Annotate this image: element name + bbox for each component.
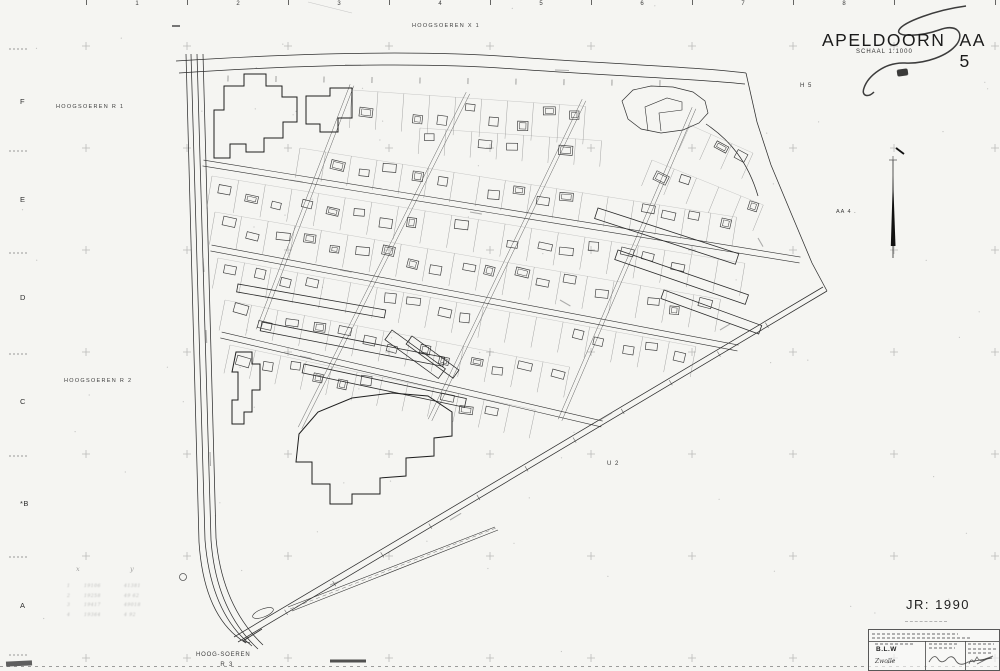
parcel-boundary: [660, 250, 665, 283]
pencil-entry-illegible: 19417: [84, 603, 101, 608]
grid-cross: [890, 450, 898, 458]
parcel-boundary: [681, 209, 686, 239]
scan-speckle: [391, 337, 392, 338]
parcel-boundary: [427, 388, 433, 416]
scan-speckle: [818, 121, 819, 122]
parcel-boundary: [713, 259, 718, 292]
parcel-boundary: [401, 94, 404, 132]
house-inner-outline: [517, 269, 528, 276]
top-ruler-tick: [288, 0, 289, 5]
house-outline: [563, 274, 576, 284]
parcel-boundary: [690, 347, 696, 377]
scan-speckle: [479, 352, 480, 353]
street-name-illegible: [330, 581, 341, 585]
grid-cross: [789, 348, 797, 356]
house-inner-outline: [414, 173, 421, 180]
top-ruler-tick: [894, 0, 895, 5]
scan-speckle: [513, 543, 514, 544]
parcel-boundary: [451, 302, 457, 332]
street-name-illegible: [758, 238, 763, 247]
grid-cross: [486, 144, 494, 152]
house-outline: [262, 361, 273, 371]
house-outline: [290, 361, 300, 370]
house-inner-outline: [361, 109, 371, 116]
scan-speckle: [561, 651, 562, 652]
house-outline: [536, 278, 550, 287]
track-loop: [251, 605, 274, 620]
house-outline: [363, 335, 376, 346]
house-outline: [429, 265, 442, 276]
scan-speckle: [607, 576, 608, 577]
grid-cross: [688, 42, 696, 50]
house-outline: [407, 259, 419, 270]
track-strip: [292, 530, 498, 611]
grid-coordinate-label-illegible: [9, 48, 28, 50]
house-inner-outline: [332, 161, 343, 169]
grid-cross: [789, 552, 797, 560]
scan-speckle: [774, 571, 775, 572]
top-ruler-tick: [389, 0, 390, 5]
grid-cross: [486, 450, 494, 458]
scan-scratch: [308, 2, 352, 13]
parcel-boundary: [209, 212, 215, 245]
scan-speckle: [478, 165, 479, 166]
parcel-boundary: [478, 307, 484, 337]
parcel-boundary: [427, 95, 430, 133]
parcel-boundary: [342, 235, 348, 268]
parcel-boundary: [529, 410, 535, 438]
house-outline: [538, 242, 553, 251]
grid-cross: [82, 552, 90, 560]
house-inner-outline: [562, 194, 572, 200]
parcel-boundary: [313, 193, 318, 226]
parcel-boundary: [475, 258, 481, 291]
scan-speckle: [358, 388, 359, 389]
parcel-boundary: [505, 101, 508, 139]
house-outline: [653, 171, 669, 185]
parcel-boundary: [405, 336, 411, 366]
parcel-boundary: [219, 300, 225, 330]
parcel-boundary: [555, 272, 561, 305]
street-name-illegible: [720, 324, 730, 330]
parcel-boundary: [526, 228, 531, 261]
scan-speckle: [766, 133, 767, 134]
pencil-entry-illegible: 19106: [84, 584, 101, 589]
scan-speckle: [984, 82, 985, 83]
top-ruler-number: 2: [236, 1, 239, 7]
parcel-boundary: [642, 160, 652, 186]
scan-speckle: [293, 114, 294, 115]
large-building-outline: [214, 74, 297, 158]
house-outline: [280, 277, 292, 288]
left-ruler-letter: *B: [20, 499, 29, 508]
parcel-boundary: [552, 189, 557, 219]
parcel-boundary: [611, 332, 617, 362]
house-inner-outline: [409, 219, 415, 226]
left-ruler-letter: C: [20, 397, 26, 406]
house-outline: [661, 210, 676, 220]
house-inner-outline: [306, 235, 314, 241]
grid-cross: [991, 144, 999, 152]
scan-speckle: [284, 215, 285, 216]
scan-speckle: [253, 226, 254, 227]
parcel-boundary: [753, 205, 763, 231]
house-outline: [233, 303, 249, 316]
grid-coordinate-label-illegible: [9, 455, 28, 457]
grid-cross: [587, 552, 595, 560]
grid-cross: [183, 348, 191, 356]
scan-speckle: [807, 360, 808, 361]
house-outline: [354, 209, 365, 217]
parcel-boundary: [431, 341, 437, 371]
parcel-boundary: [319, 278, 325, 308]
grid-cross: [991, 348, 999, 356]
road-line: [746, 73, 827, 291]
house-outline: [507, 143, 518, 150]
parcel-boundary: [378, 331, 384, 361]
road-line: [176, 53, 746, 73]
parcel-boundary: [731, 196, 741, 222]
parcel-row-baseline: [300, 148, 737, 217]
scan-speckle: [89, 394, 90, 395]
house-outline: [326, 207, 339, 217]
grid-cross: [688, 654, 696, 662]
parcel-boundary: [275, 356, 281, 384]
house-outline: [454, 220, 468, 230]
scan-speckle: [121, 38, 122, 39]
scan-speckle: [382, 121, 383, 122]
house-outline: [515, 267, 530, 278]
parcel-boundary: [233, 180, 238, 213]
pencil-entry-illegible: 4 92: [124, 613, 136, 618]
scan-speckle: [959, 337, 960, 338]
parcel-boundary: [316, 230, 322, 263]
grid-cross: [486, 654, 494, 662]
grid-cross: [284, 552, 292, 560]
parcel-boundary: [608, 281, 614, 314]
parcel-boundary: [664, 169, 674, 195]
grid-cross: [991, 246, 999, 254]
parcel-row-baseline: [690, 125, 753, 153]
scan-speckle: [512, 8, 513, 9]
scan-speckle: [36, 48, 37, 49]
pencil-table-header: y: [130, 565, 134, 573]
track-strip-center: [290, 528, 496, 609]
top-ruler-tick: [86, 0, 87, 5]
long-building-outline: [237, 284, 386, 318]
parcel-boundary: [425, 297, 431, 327]
house-outline: [257, 320, 272, 330]
grid-cross: [284, 654, 292, 662]
house-inner-outline: [461, 407, 471, 413]
parcel-boundary: [375, 92, 378, 130]
parcel-boundary: [708, 187, 718, 213]
parcel-boundary: [511, 357, 517, 387]
open-parcel-notch: [645, 98, 682, 131]
house-outline: [484, 265, 496, 276]
street: [222, 332, 603, 421]
house-outline: [463, 263, 476, 272]
parcel-boundary: [340, 198, 345, 231]
grid-cross: [789, 450, 797, 458]
house-outline: [485, 406, 499, 416]
scan-speckle: [573, 432, 574, 433]
parcel-boundary: [686, 178, 696, 204]
parcel-boundary: [655, 205, 660, 235]
scan-speckle: [343, 482, 344, 483]
scan-speckle: [167, 367, 168, 368]
grid-cross: [789, 42, 797, 50]
parcel-boundary: [393, 207, 398, 240]
grid-coordinate-label-illegible: [9, 556, 28, 558]
house-outline: [285, 319, 298, 327]
grid-cross: [82, 42, 90, 50]
grid-cross: [183, 552, 191, 560]
left-ruler-letter: E: [20, 195, 26, 204]
cross-street: [562, 109, 696, 421]
top-ruler-number: 6: [640, 1, 643, 7]
parcel-boundary: [299, 315, 305, 345]
scan-speckle: [362, 88, 363, 89]
grid-cross: [688, 552, 696, 560]
house-inner-outline: [409, 261, 417, 268]
house-inner-outline: [247, 196, 256, 202]
scale-label: SCHAAL 1:1000: [856, 49, 913, 55]
pencil-row-marker: 4: [67, 613, 70, 618]
house-outline: [536, 196, 550, 205]
scan-speckle: [736, 279, 737, 280]
grid-cross: [789, 654, 797, 662]
parcel-boundary: [212, 258, 218, 288]
house-outline: [438, 307, 452, 318]
parcel-boundary: [398, 292, 404, 322]
scan-speckle: [219, 502, 220, 503]
house-outline: [218, 185, 231, 195]
top-ruler-tick: [995, 0, 996, 5]
scan-speckle: [933, 476, 934, 477]
parcel-boundary: [295, 148, 300, 178]
parcel-boundary: [531, 103, 534, 141]
parcel-boundary: [422, 249, 428, 282]
house-outline: [572, 329, 584, 340]
house-inner-outline: [722, 220, 729, 227]
grid-cross: [991, 552, 999, 560]
scan-speckle: [201, 111, 202, 112]
pencil-row-marker: 1: [67, 584, 70, 589]
house-outline: [306, 278, 319, 288]
street-name-illegible: [206, 330, 207, 343]
parcel-boundary: [504, 312, 510, 342]
parcel-boundary: [246, 305, 252, 335]
scan-speckle: [125, 471, 126, 472]
scan-speckle: [183, 401, 184, 402]
house-outline: [406, 297, 421, 306]
region-label-r3: R 3: [220, 662, 233, 668]
house-inner-outline: [486, 267, 493, 274]
top-ruler-tick: [591, 0, 592, 5]
scan-speckle: [426, 541, 427, 542]
scan-corner-smudge: [6, 660, 32, 666]
house-outline: [330, 245, 340, 253]
house-outline: [406, 217, 416, 227]
north-arrow-dash: [896, 148, 904, 154]
grid-cross: [688, 450, 696, 458]
house-outline: [223, 265, 236, 275]
parcel-boundary: [478, 399, 484, 427]
region-label-hoogsoeren-r2: HOOGSOEREN R 2: [64, 378, 132, 384]
parcel-boundary: [531, 317, 537, 347]
parcel-boundary: [372, 160, 377, 190]
scan-speckle: [987, 88, 988, 89]
scan-speckle: [36, 260, 37, 261]
road-line: [234, 287, 823, 637]
grid-cross: [385, 144, 393, 152]
parcel-boundary: [548, 137, 550, 163]
parcel-boundary: [287, 189, 292, 222]
scan-speckle: [22, 209, 23, 210]
parcel-boundary: [265, 268, 271, 298]
house-outline: [222, 216, 237, 227]
parcel-boundary: [446, 215, 451, 248]
grid-cross: [82, 654, 90, 662]
parcel-boundary: [583, 106, 586, 144]
grid-cross: [486, 42, 494, 50]
grid-cross: [183, 144, 191, 152]
street-name-illegible: [600, 413, 612, 420]
parcel-boundary: [292, 273, 298, 303]
parcel-boundary: [504, 404, 510, 432]
grid-cross: [486, 246, 494, 254]
parcel-boundary: [637, 337, 643, 367]
parcel-boundary: [473, 220, 478, 253]
parcel-boundary: [372, 288, 378, 318]
parcel-boundary: [239, 263, 245, 293]
left-ruler-letter: F: [20, 97, 25, 106]
house-outline: [551, 369, 565, 379]
house-outline: [459, 313, 470, 323]
house-outline: [669, 306, 679, 315]
long-building-outline: [260, 322, 444, 366]
house-inner-outline: [671, 308, 677, 313]
grid-cross: [991, 450, 999, 458]
parcel-boundary: [629, 201, 634, 231]
grid-cross: [82, 144, 90, 152]
house-inner-outline: [515, 188, 523, 193]
grid-coordinate-label-illegible: [9, 252, 28, 254]
house-outline: [271, 201, 282, 210]
grid-cross: [284, 42, 292, 50]
scan-speckle: [654, 5, 655, 6]
scan-speckle: [295, 111, 296, 112]
title-block: B.L.W Zwolle: [868, 629, 1000, 671]
parcel-boundary: [479, 99, 482, 137]
street-name-illegible: [560, 300, 570, 306]
street: [212, 245, 739, 345]
house-outline: [720, 218, 731, 229]
parcel-boundary: [501, 181, 506, 211]
house-outline: [465, 104, 475, 112]
house-inner-outline: [414, 116, 420, 122]
parcel-boundary: [272, 310, 278, 340]
house-outline: [412, 115, 422, 124]
house-outline: [595, 289, 608, 298]
parcel-boundary: [263, 221, 269, 254]
grid-coordinate-label-illegible: [9, 150, 28, 152]
house-outline: [679, 174, 691, 184]
parcel-boundary: [600, 141, 602, 167]
top-ruler-number: 5: [539, 1, 542, 7]
region-label-hoogsoeren-r1: HOOGSOEREN R 1: [56, 104, 124, 110]
scan-speckle: [770, 362, 771, 363]
house-outline: [492, 367, 503, 376]
parcel-boundary: [224, 345, 230, 373]
scan-speckle: [942, 131, 943, 132]
house-outline: [356, 246, 370, 255]
year-underline-dots: [905, 621, 947, 622]
north-arrow-cross: [889, 156, 897, 164]
parcel-boundary: [396, 244, 402, 277]
parcel-boundary: [580, 237, 585, 270]
parcel-boundary: [420, 211, 425, 244]
grid-cross: [890, 348, 898, 356]
house-outline: [246, 232, 260, 242]
house-outline: [379, 218, 393, 229]
parcel-boundary: [418, 128, 420, 154]
parcel-boundary: [458, 346, 464, 376]
parcel-boundary: [449, 253, 455, 286]
parcel-boundary: [402, 383, 408, 411]
long-building-outline: [385, 330, 445, 379]
parcel-boundary: [679, 125, 690, 151]
parcel-boundary: [367, 202, 372, 235]
scan-speckle: [240, 367, 241, 368]
grid-cross: [789, 246, 797, 254]
house-outline: [488, 190, 500, 200]
road-line: [186, 54, 246, 643]
grid-cross: [890, 246, 898, 254]
parcel-boundary: [369, 240, 375, 273]
parcel-boundary: [715, 299, 721, 332]
parcel-boundary: [564, 367, 570, 397]
house-inner-outline: [328, 209, 337, 215]
house-outline: [304, 234, 317, 243]
scan-speckle: [773, 183, 774, 184]
parcel-boundary: [347, 156, 352, 186]
scan-speckle: [850, 606, 851, 607]
sheet-ref-h5: H 5: [800, 83, 812, 89]
parcel-boundary: [740, 263, 745, 296]
house-outline: [437, 115, 448, 125]
year-label: JR: 1990: [906, 597, 970, 612]
house-outline: [359, 107, 373, 118]
scan-speckle: [317, 531, 318, 532]
top-ruler-tick: [692, 0, 693, 5]
grid-cross: [82, 450, 90, 458]
house-outline: [276, 232, 290, 241]
scan-speckle: [282, 44, 283, 45]
parcel-boundary: [537, 362, 543, 392]
cadastral-map-drawing: [0, 0, 1000, 671]
house-outline: [714, 141, 729, 153]
grid-cross: [82, 246, 90, 254]
scan-speckle: [874, 612, 875, 613]
house-inner-outline: [750, 203, 757, 210]
house-outline: [648, 298, 660, 306]
parcel-boundary: [706, 213, 711, 243]
top-ruler-number: 3: [337, 1, 340, 7]
parcel-boundary: [578, 193, 583, 223]
map-title-sheet: AA 5: [960, 30, 1000, 72]
